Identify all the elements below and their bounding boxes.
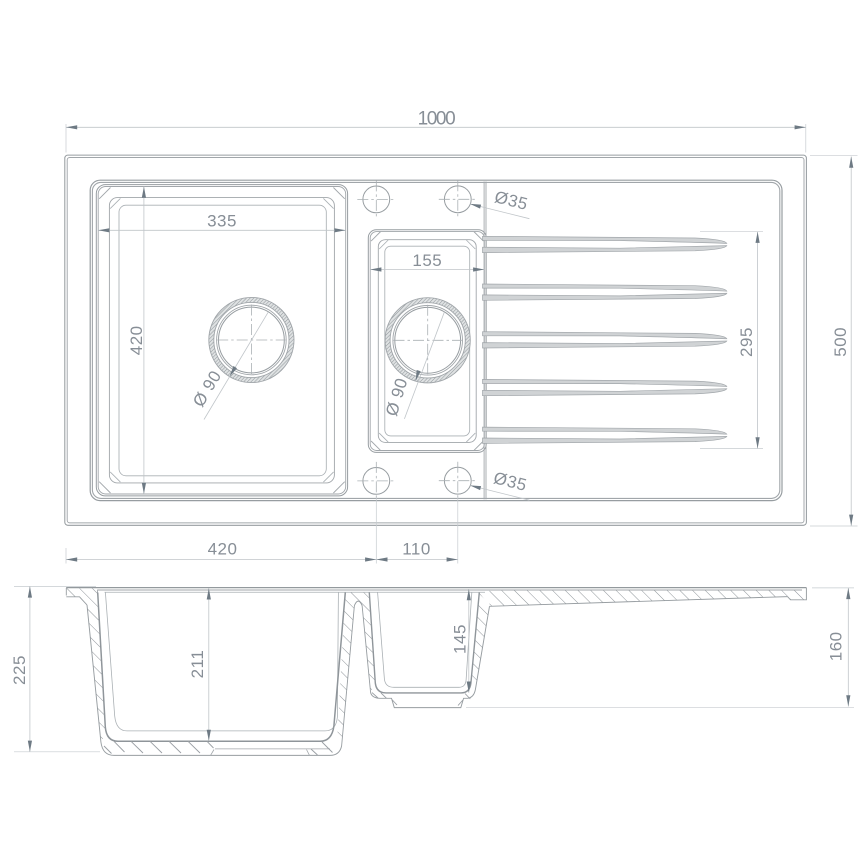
svg-text:1000: 1000: [418, 108, 456, 129]
svg-text:211: 211: [188, 650, 207, 679]
svg-text:160: 160: [827, 631, 846, 661]
svg-text:420: 420: [208, 540, 238, 559]
svg-text:335: 335: [207, 212, 237, 231]
svg-text:225: 225: [10, 655, 29, 685]
svg-text:500: 500: [831, 327, 850, 357]
svg-text:420: 420: [127, 325, 146, 355]
svg-text:295: 295: [737, 327, 756, 357]
svg-text:110: 110: [402, 540, 431, 559]
svg-text:145: 145: [451, 624, 470, 654]
svg-text:155: 155: [412, 251, 442, 270]
